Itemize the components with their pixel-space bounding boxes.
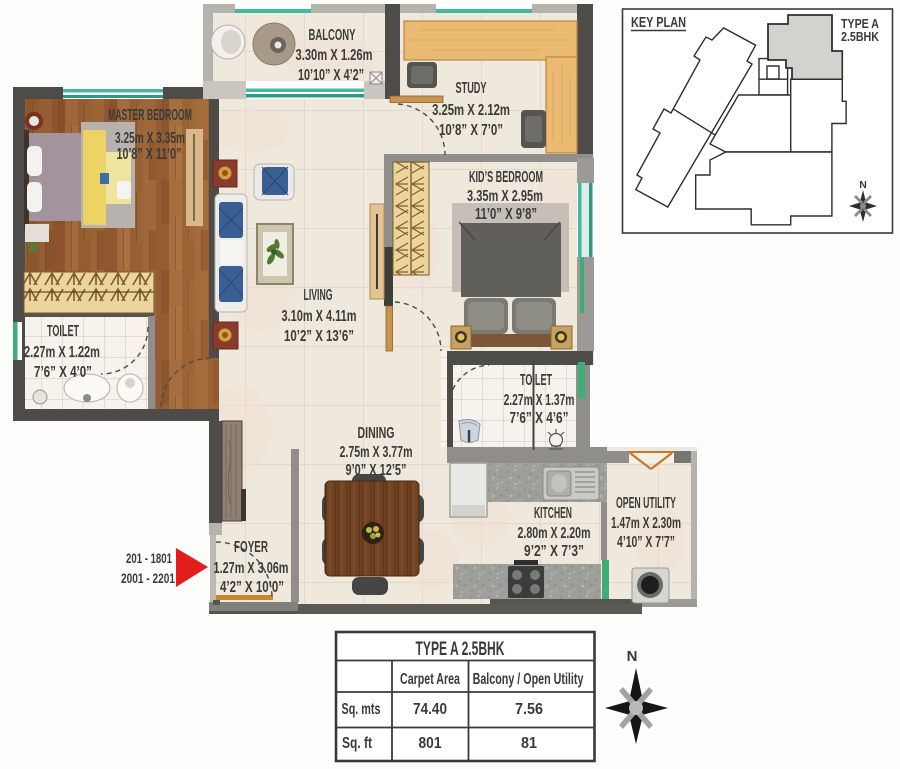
svg-text:KEY PLAN: KEY PLAN xyxy=(631,13,686,30)
svg-text:3.30m X 1.26m: 3.30m X 1.26m xyxy=(296,46,373,63)
svg-text:2.27m X 1.22m: 2.27m X 1.22m xyxy=(24,343,100,360)
svg-text:Sq. ft: Sq. ft xyxy=(342,733,372,751)
svg-text:N: N xyxy=(859,179,867,191)
svg-text:2.80m X 2.20m: 2.80m X 2.20m xyxy=(518,524,591,542)
svg-text:Carpet Area: Carpet Area xyxy=(400,670,460,688)
svg-text:10’8” X 11’0”: 10’8” X 11’0” xyxy=(117,145,182,162)
svg-text:N: N xyxy=(627,648,638,665)
svg-text:1.27m X 3.06m: 1.27m X 3.06m xyxy=(214,559,289,576)
svg-text:2.75m X 3.77m: 2.75m X 3.77m xyxy=(340,443,413,461)
svg-text:LIVING: LIVING xyxy=(304,286,333,303)
svg-text:74.40: 74.40 xyxy=(413,701,447,718)
svg-text:FOYER: FOYER xyxy=(234,538,268,556)
svg-text:11’0” X 9’8”: 11’0” X 9’8” xyxy=(475,205,537,222)
svg-text:1.47m X 2.30m: 1.47m X 2.30m xyxy=(611,514,681,532)
svg-text:3.25m X 3.35m: 3.25m X 3.35m xyxy=(115,129,185,147)
svg-text:2001 - 2201: 2001 - 2201 xyxy=(121,571,175,587)
svg-text:81: 81 xyxy=(521,734,538,752)
svg-text:3.25m X 2.12m: 3.25m X 2.12m xyxy=(432,101,510,118)
svg-text:4’10” X 7’7”: 4’10” X 7’7” xyxy=(617,533,675,551)
svg-text:TYPE A 2.5BHK: TYPE A 2.5BHK xyxy=(416,639,505,659)
svg-text:STUDY: STUDY xyxy=(456,78,487,96)
svg-text:4’2” X 10’0”: 4’2” X 10’0” xyxy=(220,578,284,595)
svg-text:MASTER BEDROOM: MASTER BEDROOM xyxy=(108,106,192,123)
svg-text:DINING: DINING xyxy=(358,424,395,442)
svg-text:7’6” X 4’6”: 7’6” X 4’6” xyxy=(510,409,569,426)
svg-text:2.27m X 1.37m: 2.27m X 1.37m xyxy=(504,391,575,409)
svg-text:7’6” X 4’0”: 7’6” X 4’0” xyxy=(34,363,92,380)
svg-text:10’2” X 13’6”: 10’2” X 13’6” xyxy=(284,327,354,344)
svg-text:201 - 1801: 201 - 1801 xyxy=(126,551,172,566)
svg-text:10’10” X 4’2”: 10’10” X 4’2” xyxy=(298,66,364,83)
svg-text:KID’S BEDROOM: KID’S BEDROOM xyxy=(469,169,543,186)
svg-text:OPEN UTILITY: OPEN UTILITY xyxy=(616,494,676,511)
svg-text:3.10m X 4.11m: 3.10m X 4.11m xyxy=(282,307,357,324)
svg-text:BALCONY: BALCONY xyxy=(309,26,356,44)
svg-text:Sq. mts: Sq. mts xyxy=(342,700,381,718)
svg-text:TOILET: TOILET xyxy=(47,323,79,340)
svg-text:10’8” X 7’0”: 10’8” X 7’0” xyxy=(439,121,503,138)
svg-text:9’2” X 7’3”: 9’2” X 7’3” xyxy=(524,541,584,559)
svg-text:3.35m X 2.95m: 3.35m X 2.95m xyxy=(467,187,543,204)
svg-text:TOILET: TOILET xyxy=(520,372,552,389)
svg-text:Balcony / Open Utility: Balcony / Open Utility xyxy=(473,670,584,688)
svg-text:801: 801 xyxy=(419,734,442,752)
svg-text:KITCHEN: KITCHEN xyxy=(534,504,572,521)
svg-text:2.5BHK: 2.5BHK xyxy=(841,29,879,44)
svg-text:9’0” X 12’5”: 9’0” X 12’5” xyxy=(346,461,407,478)
svg-text:7.56: 7.56 xyxy=(515,700,543,718)
